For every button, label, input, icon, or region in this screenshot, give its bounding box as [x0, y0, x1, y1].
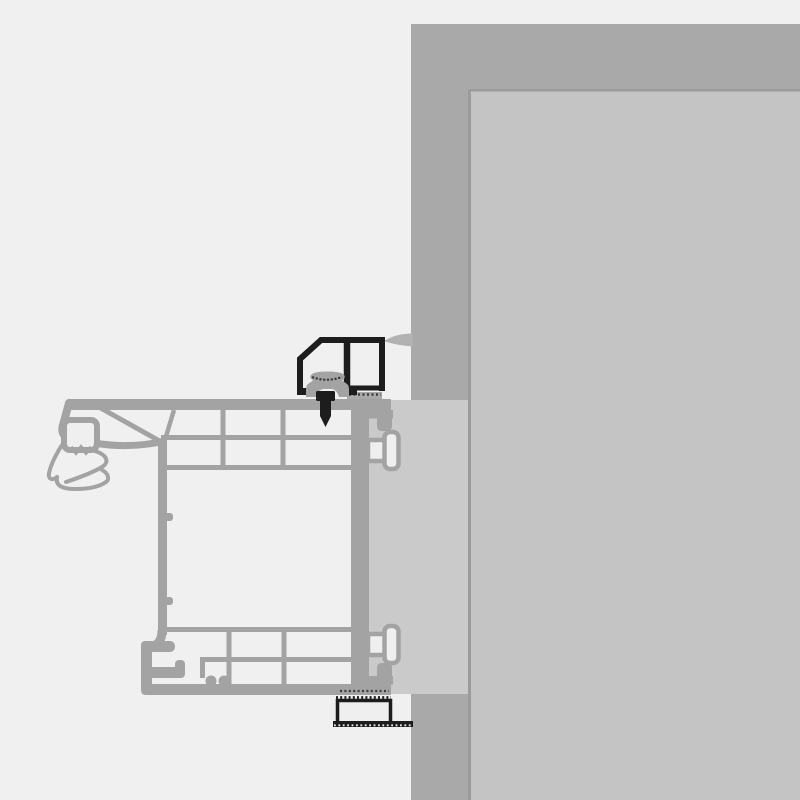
bottom-hook-finger: [377, 663, 392, 684]
wall-section: [411, 24, 800, 800]
wall-seam-top: [468, 89, 800, 92]
divider-h3: [165, 627, 351, 632]
wall-nub-lower: [165, 597, 173, 605]
bottom-bump-1: [206, 676, 217, 687]
wall-inner-face: [470, 89, 800, 800]
divider-v5: [200, 660, 205, 678]
frame-left-chamber-wall: [158, 441, 167, 635]
divider-v4: [282, 630, 287, 684]
anchor-lug-top: [385, 432, 399, 469]
screw-head: [316, 391, 335, 401]
frame-top-bar: [65, 399, 391, 410]
wall-nub-upper: [165, 513, 173, 521]
hook-tooth: [175, 660, 185, 678]
divider-h4: [200, 657, 351, 662]
hook-top-jaw: [141, 641, 175, 652]
divider-v1: [221, 410, 226, 470]
packer-block: [338, 701, 391, 724]
top-hook-finger: [377, 410, 392, 431]
anchor-lug-bottom: [385, 626, 399, 663]
divider-v2: [281, 410, 286, 470]
bottom-bump-2: [219, 676, 230, 687]
section-diagram: [0, 0, 800, 800]
divider-h1: [161, 435, 351, 440]
divider-v3: [227, 630, 232, 684]
frame-bottom-bar: [141, 684, 391, 695]
divider-h2: [162, 465, 351, 470]
wall-seam-left: [468, 89, 471, 800]
